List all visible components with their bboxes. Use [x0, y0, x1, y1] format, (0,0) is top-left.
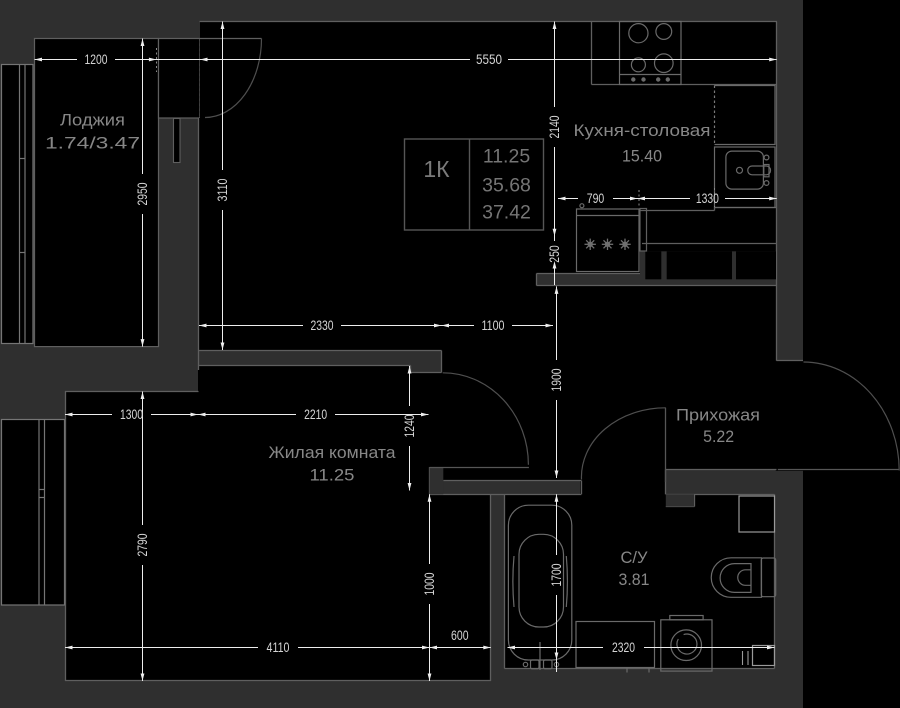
svg-text:1700: 1700 — [548, 563, 564, 586]
svg-text:1330: 1330 — [696, 190, 719, 206]
svg-text:35.68: 35.68 — [482, 175, 531, 197]
svg-text:2320: 2320 — [612, 639, 635, 655]
svg-text:2790: 2790 — [134, 533, 150, 556]
svg-text:2210: 2210 — [304, 406, 327, 422]
svg-text:3.81: 3.81 — [619, 571, 650, 589]
svg-text:1240: 1240 — [401, 414, 417, 437]
svg-text:11.25: 11.25 — [483, 146, 531, 168]
svg-text:2950: 2950 — [134, 182, 150, 205]
svg-text:1.74/3.47: 1.74/3.47 — [45, 134, 140, 152]
svg-text:С/У: С/У — [621, 549, 649, 567]
svg-text:1000: 1000 — [421, 572, 437, 595]
svg-text:1100: 1100 — [482, 317, 505, 333]
svg-text:Прихожая: Прихожая — [676, 406, 760, 424]
svg-text:1200: 1200 — [85, 51, 108, 67]
svg-text:Жилая комната: Жилая комната — [269, 444, 397, 462]
svg-text:11.25: 11.25 — [310, 466, 355, 484]
svg-text:Лоджия: Лоджия — [60, 111, 125, 129]
svg-text:2330: 2330 — [311, 317, 334, 333]
svg-text:790: 790 — [587, 190, 605, 206]
svg-text:2140: 2140 — [546, 115, 562, 138]
svg-text:600: 600 — [451, 627, 469, 643]
svg-text:4110: 4110 — [267, 639, 290, 655]
svg-text:5.22: 5.22 — [703, 428, 734, 446]
svg-text:15.40: 15.40 — [622, 147, 662, 165]
svg-text:1900: 1900 — [548, 368, 564, 391]
svg-text:1К: 1К — [423, 156, 450, 182]
svg-text:5550: 5550 — [476, 51, 502, 67]
svg-text:1300: 1300 — [120, 406, 143, 422]
svg-text:3110: 3110 — [214, 178, 230, 201]
svg-text:Кухня-столовая: Кухня-столовая — [574, 122, 711, 140]
svg-text:250: 250 — [546, 245, 562, 263]
svg-text:37.42: 37.42 — [482, 202, 531, 224]
